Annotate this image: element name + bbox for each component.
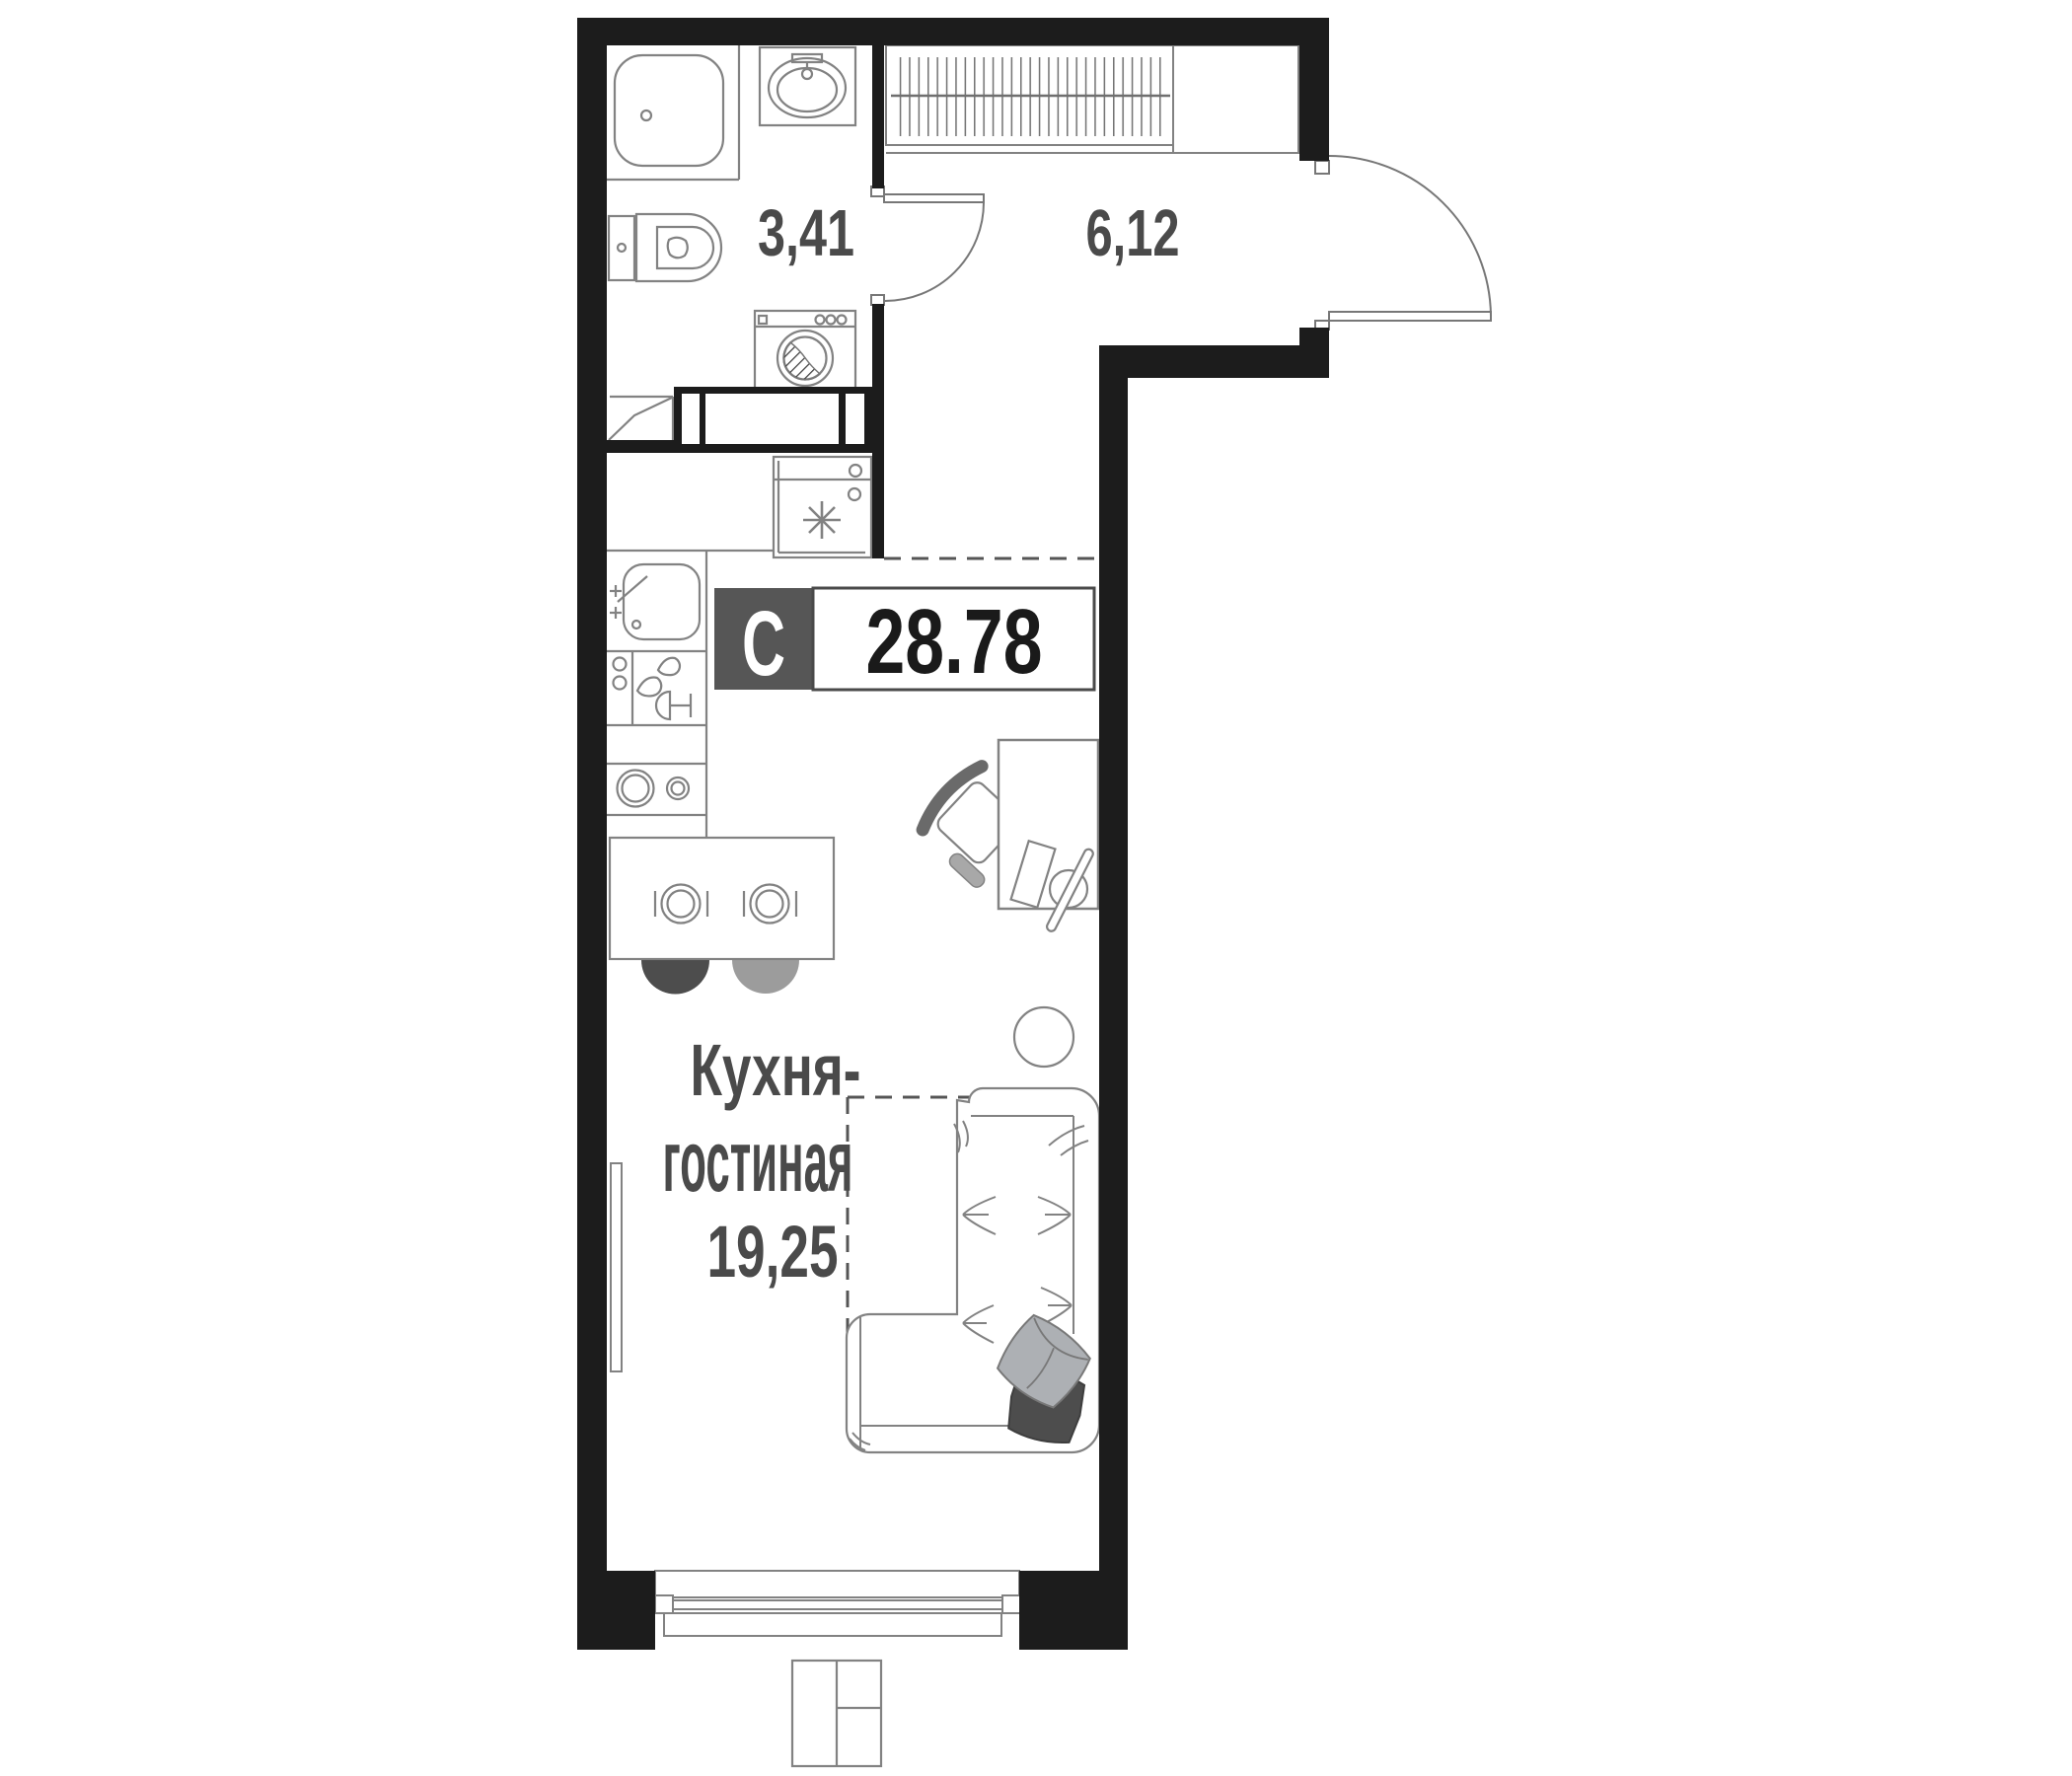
svg-text:6,12: 6,12	[1086, 196, 1180, 270]
svg-text:19,25: 19,25	[707, 1211, 839, 1293]
svg-text:28.78: 28.78	[866, 590, 1043, 693]
svg-text:С: С	[742, 592, 785, 695]
svg-text:гостиная: гостиная	[663, 1112, 853, 1210]
svg-text:3,41: 3,41	[758, 196, 854, 270]
svg-text:Кухня-: Кухня-	[691, 1029, 861, 1111]
